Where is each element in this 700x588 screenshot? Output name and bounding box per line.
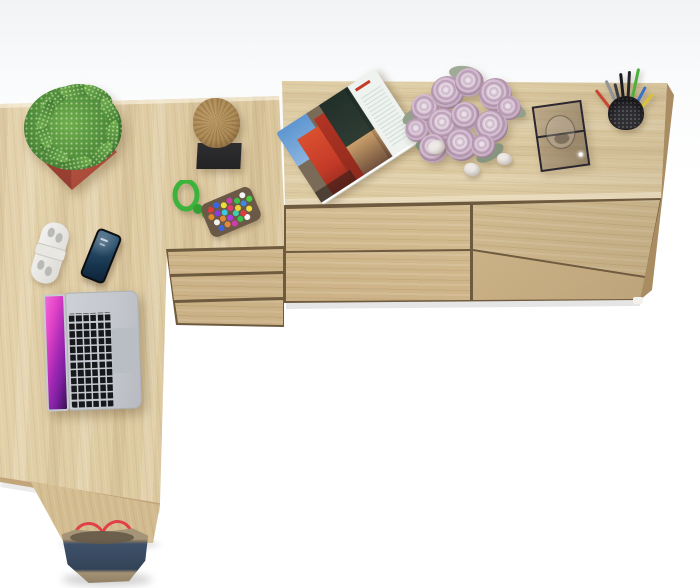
- rose-bloom: [471, 134, 495, 158]
- glass-display-box: [532, 100, 591, 172]
- sideboard-foot: [633, 297, 643, 304]
- tote-bag: [56, 518, 152, 586]
- mesh-cup: [608, 96, 644, 130]
- laptop: [40, 287, 144, 412]
- potted-plant: [20, 82, 130, 194]
- log-trunk: [193, 98, 240, 148]
- bag-opening: [70, 531, 134, 544]
- pencil-cup: [596, 68, 658, 134]
- bead-pattern: [202, 205, 210, 213]
- product-photo-scene: [0, 0, 700, 588]
- log-ornament: [190, 96, 248, 172]
- laptop-trackpad: [111, 327, 138, 373]
- laptop-keyboard: [69, 312, 114, 407]
- beaded-keychain: [168, 180, 268, 242]
